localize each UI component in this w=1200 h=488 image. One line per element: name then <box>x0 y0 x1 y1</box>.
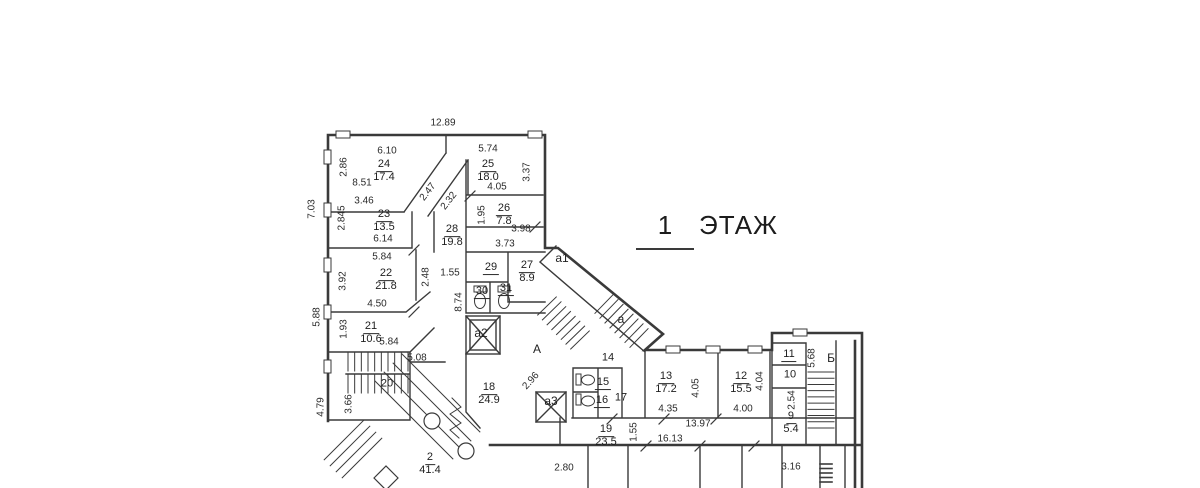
floor-word: ЭТАЖ <box>699 210 778 241</box>
floor-plan-drawing <box>0 0 1200 488</box>
elevator-shaft-2 <box>536 392 566 422</box>
entrance-steps <box>324 420 382 478</box>
floor-plan-page: 12.897.035.884.796.102.868.513.462.8456.… <box>0 0 1200 488</box>
window-marks <box>324 131 807 373</box>
outer-walls <box>328 135 862 488</box>
inner-walls <box>328 135 855 488</box>
staircase-b <box>808 372 834 428</box>
staircase-a-flight-1 <box>538 297 590 349</box>
entrance-landing <box>374 466 398 488</box>
floor-number: 1 <box>636 210 694 250</box>
elevator-shaft-1 <box>466 316 500 354</box>
drawing-title: 1 ЭТАЖ <box>636 210 778 250</box>
staircase-a-flight-2 <box>595 295 648 348</box>
staircase-b-lower-flight <box>820 464 832 482</box>
